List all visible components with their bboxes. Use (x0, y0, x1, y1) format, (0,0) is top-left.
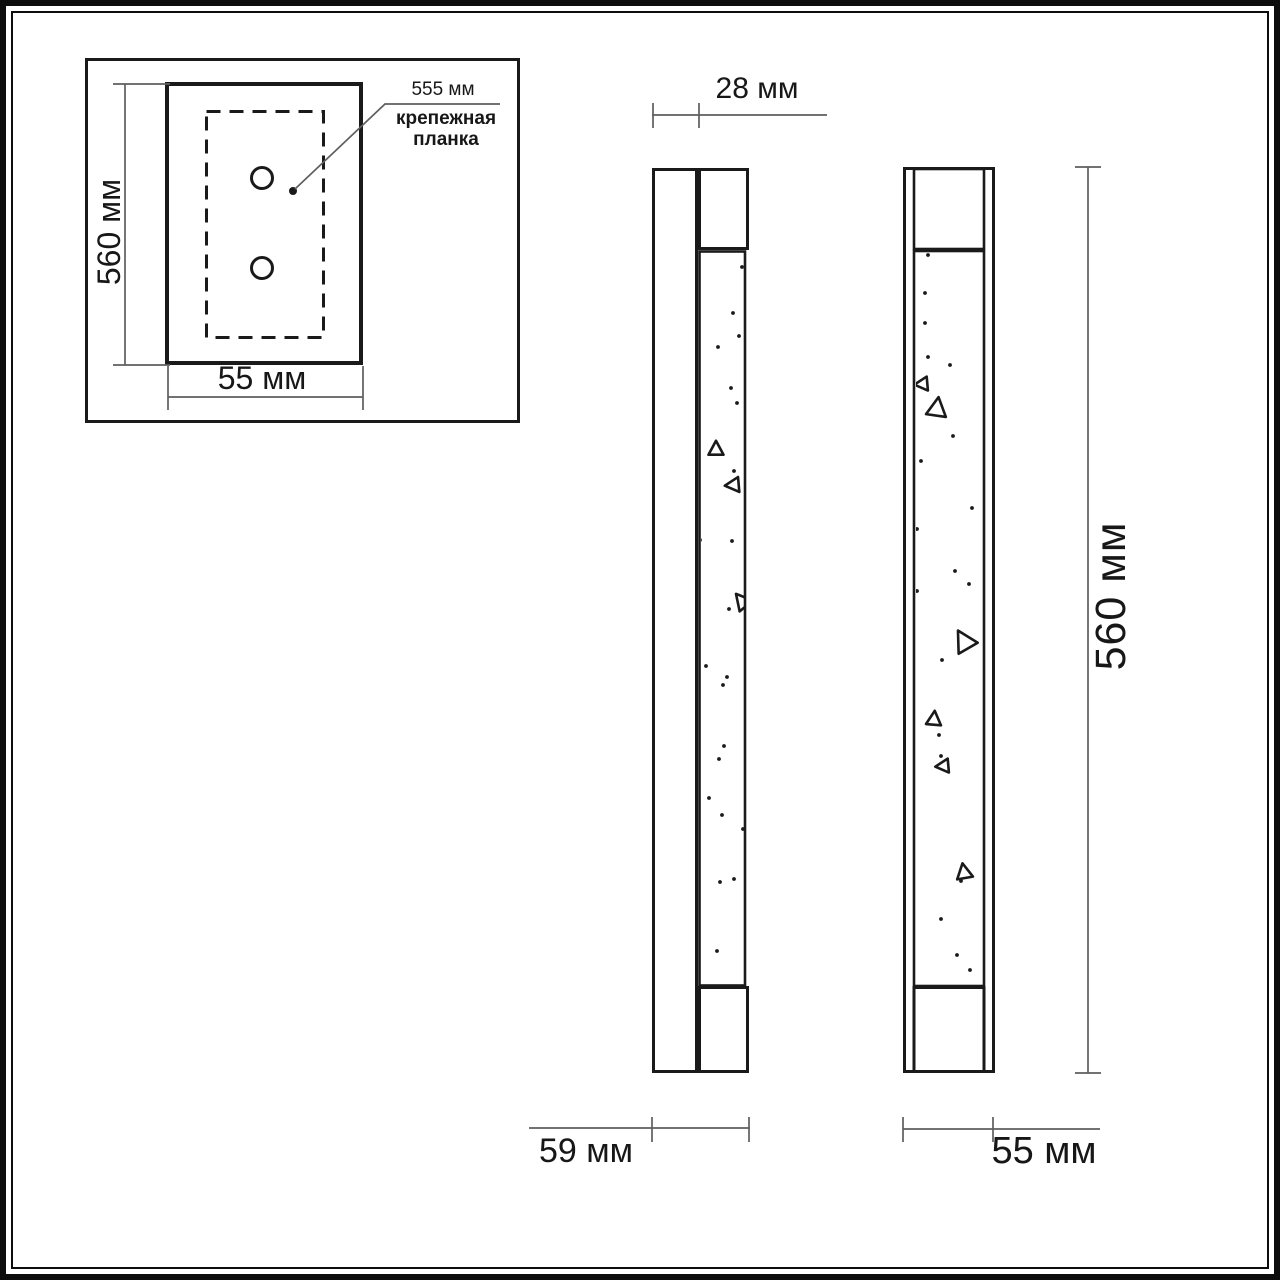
mounting-hole-bottom (252, 258, 273, 279)
front-outer-frame (905, 169, 994, 1072)
front-width-label: 55 мм (974, 1131, 1114, 1173)
front-top-cap (914, 169, 984, 249)
side-backplate (654, 170, 697, 1072)
side-bottom-cap (700, 988, 748, 1072)
front-bottom-cap (914, 988, 984, 1072)
front-view (903, 167, 1101, 1142)
inset-width-label: 55 мм (192, 361, 332, 397)
side-backplate-depth-dimension-line (652, 103, 827, 128)
rear-plate (167, 84, 361, 363)
side-diffuser (700, 252, 746, 986)
front-height-label: 560 мм (1088, 496, 1136, 696)
inset-height-label: 560 мм (92, 162, 128, 302)
side-view (529, 103, 827, 1142)
mounting-plate-dashed (207, 112, 324, 338)
side-backplate-depth-label: 28 мм (687, 72, 827, 105)
mounting-hole-top (252, 168, 273, 189)
side-total-depth-label: 59 мм (516, 1133, 656, 1170)
front-diffuser-sparkles (914, 253, 978, 972)
side-top-cap (700, 170, 748, 249)
mounting-plate-dim-label: 555 мм (373, 80, 513, 101)
drawing-page: 560 мм 55 мм 555 мм крепежная планка 28 … (0, 0, 1280, 1280)
mounting-plate-name-label: крепежная планка (385, 109, 507, 151)
